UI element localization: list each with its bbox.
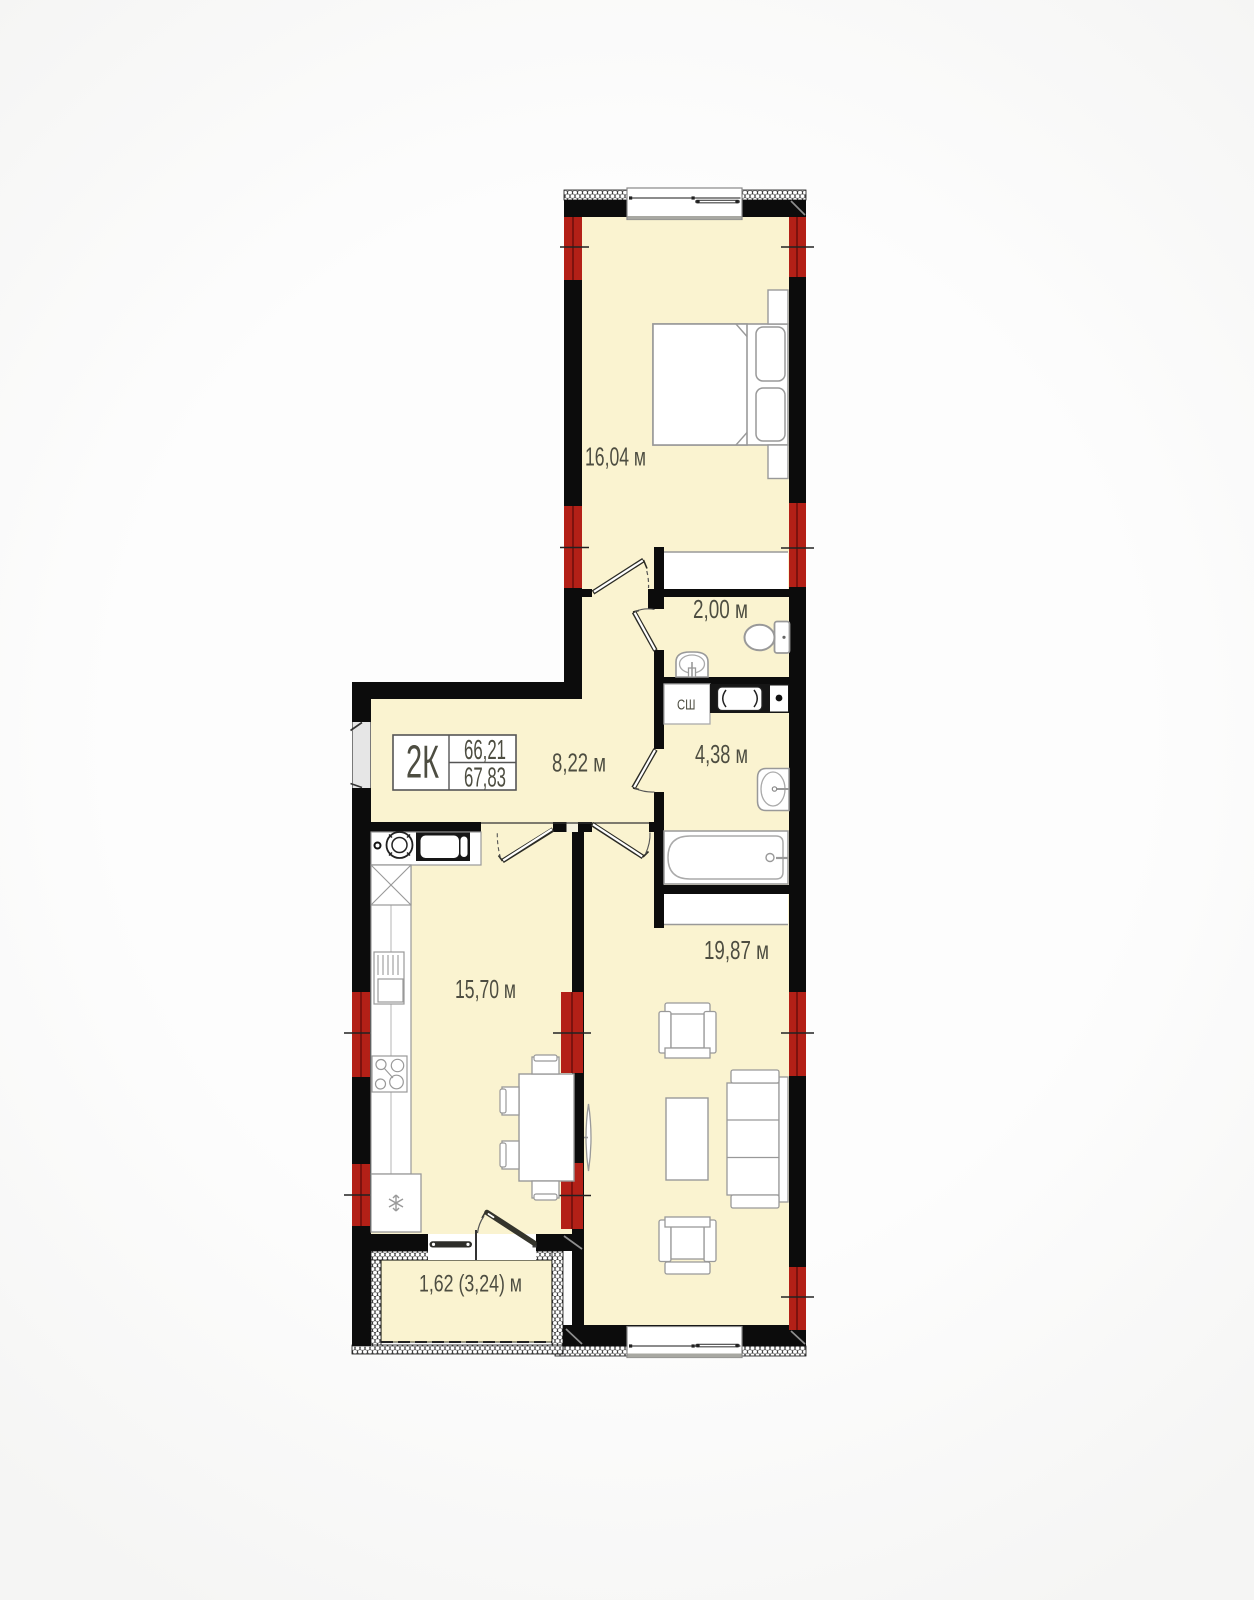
svg-text:16,04 м: 16,04 м — [585, 442, 646, 472]
svg-text:8,22 м: 8,22 м — [552, 748, 606, 778]
svg-text:4,38 м: 4,38 м — [695, 739, 748, 769]
svg-text:15,70 м: 15,70 м — [455, 974, 516, 1004]
svg-text:2К: 2К — [406, 736, 439, 788]
svg-text:1,62 (3,24) м: 1,62 (3,24) м — [419, 1271, 522, 1298]
svg-text:2,00 м: 2,00 м — [693, 594, 748, 624]
svg-text:66,21: 66,21 — [464, 734, 506, 765]
svg-text:СШ: СШ — [677, 697, 696, 714]
svg-text:19,87 м: 19,87 м — [704, 935, 769, 965]
svg-text:67,83: 67,83 — [464, 762, 506, 793]
